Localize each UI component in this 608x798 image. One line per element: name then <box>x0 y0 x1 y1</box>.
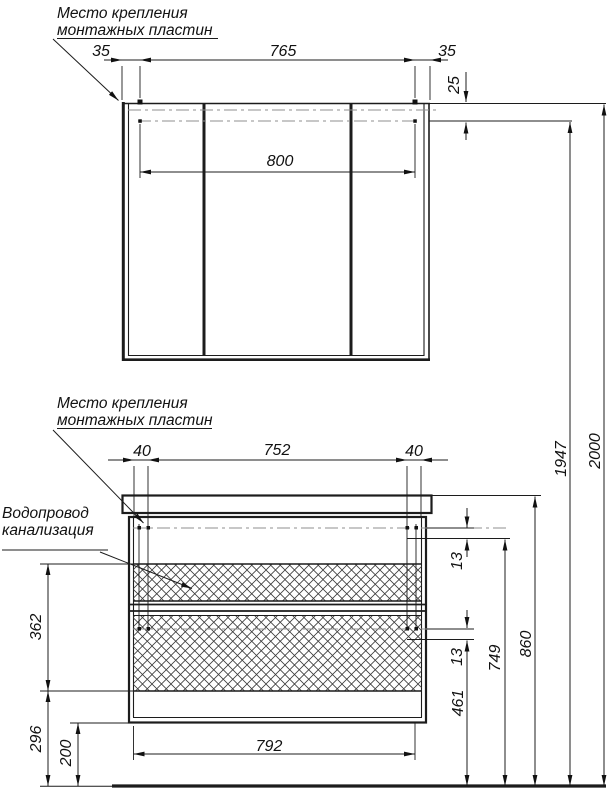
note-plumbing: Водопровод канализация <box>2 506 94 539</box>
note-line: канализация <box>2 523 94 540</box>
dim-vanity-offset-left: 40 <box>133 443 151 461</box>
dim-mirror-plate-inset: 25 <box>446 76 464 94</box>
note-mounting-plates-mid: Место крепления монтажных пластин <box>57 396 213 429</box>
dim-mirror-width: 800 <box>267 153 294 171</box>
note-mounting-plates-top: Место крепления монтажных пластин <box>57 6 213 39</box>
mounting-plate-marker <box>138 627 142 631</box>
note-line: монтажных пластин <box>57 23 213 40</box>
dim-vanity-span: 752 <box>264 442 291 460</box>
dim-front-height: 362 <box>28 614 46 641</box>
dim-bottom-width: 792 <box>256 738 283 756</box>
mounting-plate-marker <box>138 526 142 530</box>
mounting-plate-marker <box>413 119 417 123</box>
dim-vanity-offset-right: 40 <box>405 443 423 461</box>
technical-drawing: Место крепления монтажных пластин Место … <box>0 0 608 798</box>
dim-mirror-offset-right: 35 <box>438 43 456 61</box>
mounting-plate-marker <box>138 100 143 105</box>
dim-height-countertop: 860 <box>518 631 536 658</box>
dim-height-overall: 2000 <box>587 433 605 469</box>
mounting-plate-marker <box>413 100 418 105</box>
countertop <box>123 496 432 514</box>
mounting-plate-marker <box>147 627 151 631</box>
dim-mirror-span: 765 <box>270 43 297 61</box>
note-line: монтажных пластин <box>57 413 213 430</box>
note-line: Место крепления <box>57 6 213 23</box>
mounting-plate-marker <box>138 119 142 123</box>
note-line: Место крепления <box>57 396 213 413</box>
dim-mirror-offset-left: 35 <box>92 43 110 61</box>
dim-height-mirror-plate: 1947 <box>553 441 571 477</box>
dim-gap-lower: 13 <box>449 648 467 666</box>
dim-floor-clearance: 200 <box>58 740 76 767</box>
mounting-plate-marker <box>415 627 419 631</box>
mounting-plate-marker <box>406 526 410 530</box>
mounting-plate-marker <box>147 526 151 530</box>
mounting-plate-marker <box>415 526 419 530</box>
dim-gap-upper: 13 <box>449 552 467 570</box>
mirror-cabinet <box>122 100 436 362</box>
dim-height-lower-plate: 461 <box>450 690 468 717</box>
vanity-unit <box>123 466 511 723</box>
mounting-plate-marker <box>406 627 410 631</box>
drawer-front-hatch-lower <box>134 616 422 691</box>
dim-front-bottom-to-floor: 296 <box>28 726 46 753</box>
mirror-dimensions <box>104 60 606 178</box>
note-line: Водопровод <box>2 506 94 523</box>
dim-height-upper-plate: 749 <box>487 645 505 672</box>
